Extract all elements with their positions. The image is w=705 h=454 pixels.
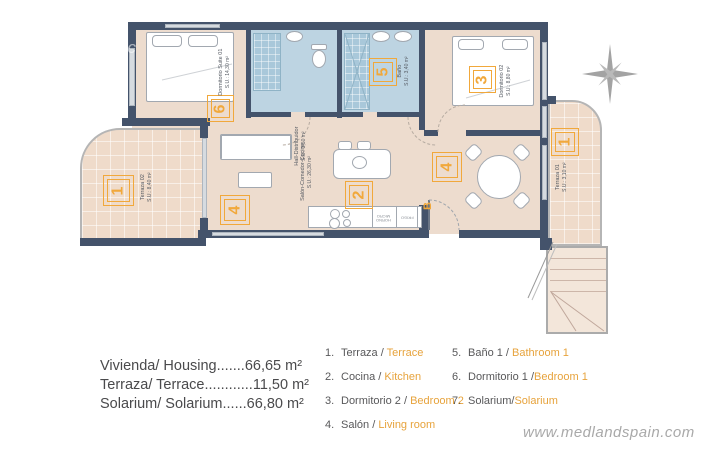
wall-terrace-02-south [80,238,206,246]
stair-steps [550,248,606,294]
shower-ensuite [253,33,281,91]
entry-block-tag: B [422,202,434,210]
legend-item-dormitorio-2: 3.Dormitorio 2 / Bedroom 2 [325,395,464,407]
wall-south-right [459,230,544,238]
wall-bath-bath [337,30,342,118]
room-tag-cocina: 2 [345,181,373,209]
window-dining-east [542,145,547,200]
legend-item-cocina: 2.Cocina / Kitchen [325,371,464,383]
label-salon-comedor-cocina: Salón-Comedor-CocinaS.U.: 26,30 m² [300,135,314,209]
wall-stairs-stub [540,238,552,250]
summary-line-terrace: Terraza/ Terrace............11,50 m² [100,376,309,395]
legend-item-terraza: 1.Terraza / Terrace [325,347,464,359]
label-dormitorio-suite-01: Dormitorio Suite 01S.U.: 14,30 m² [218,36,232,108]
room-tag-dormitorio-2: 3 [469,66,496,93]
wall-dorm2-south-1 [424,130,438,136]
wall-bath-dorm2 [419,30,425,130]
watermark-fragment: oc [118,38,136,58]
shower-bathroom-1 [344,33,370,110]
label-terraza-02: Terraza 02S.U.: 8,40 m² [140,160,154,214]
pillow [188,35,218,47]
label-dormitorio-02: Dormitorio 02S.U.: 8,80 m² [499,53,513,109]
legend-item-salon: 4.Salón / Living room [325,419,464,431]
hob-burner [342,210,350,218]
oven-microwave: HORNO MICRO [372,207,394,227]
window-suite-north [165,24,220,28]
legend-item-bano-1: 5.Baño 1 / Bathroom 1 [452,347,588,359]
door-terrace-01 [542,106,547,138]
summary-line-housing: Vivienda/ Housing.......66,65 m² [100,357,309,376]
compass-icon [582,44,638,104]
toilet-ensuite [312,50,326,68]
coffee-table [238,172,272,188]
site-watermark: www.medlandspain.com [523,424,695,441]
wall-suite-south [122,118,210,126]
legend-item-dormitorio-1: 6.Dormitorio 1 /Bedroom 1 [452,371,588,383]
room-tag-bano-1: 5 [369,58,397,86]
fridge-label: FRIGO [401,215,414,219]
island-sink [352,156,367,169]
wall-suite-bath [246,30,251,118]
hob-burner [329,218,340,229]
dining-table [477,155,521,199]
floor-plan-page: HORNO MICRO FRIGO [0,0,705,454]
wall-hall-north-3 [377,112,419,117]
summary-line-solarium: Solarium/ Solarium......66,80 m² [100,395,309,414]
label-terraza-01: Terraza 01S.U.: 3,10 m² [555,152,569,202]
solarium-stairs [546,246,608,334]
fridge: FRIGO [396,207,418,227]
wall-hall-north-1 [251,112,291,117]
pillow [152,35,182,47]
window-salon-south [212,232,324,236]
door-terrace-02 [202,138,207,218]
pillow [458,39,484,50]
room-tag-salon-right: 4 [432,152,462,182]
label-bano: BañoS.U.: 3,40 m² [397,48,411,94]
wall-hall-north-2 [305,112,363,117]
legend-column-1: 1.Terraza / Terrace 2.Cocina / Kitchen 3… [325,347,464,443]
area-summary: Vivienda/ Housing.......66,65 m² Terraza… [100,357,309,414]
room-tag-salon-left: 4 [220,195,250,225]
sink-bathroom-1b [394,31,412,42]
sink-ensuite [286,31,303,42]
legend-item-solarium: 7.Solarium/Solarium [452,395,588,407]
wall-dorm2-south-2 [466,130,544,136]
micro-label: MICRO [377,213,390,218]
room-tag-terraza-02: 1 [103,175,134,206]
window-dorm2-east [542,42,547,100]
pillow [502,39,528,50]
sink-bathroom-1 [372,31,390,42]
legend-column-2: 5.Baño 1 / Bathroom 1 6.Dormitorio 1 /Be… [452,347,588,419]
hob-burner [343,219,351,227]
sofa [220,134,292,160]
